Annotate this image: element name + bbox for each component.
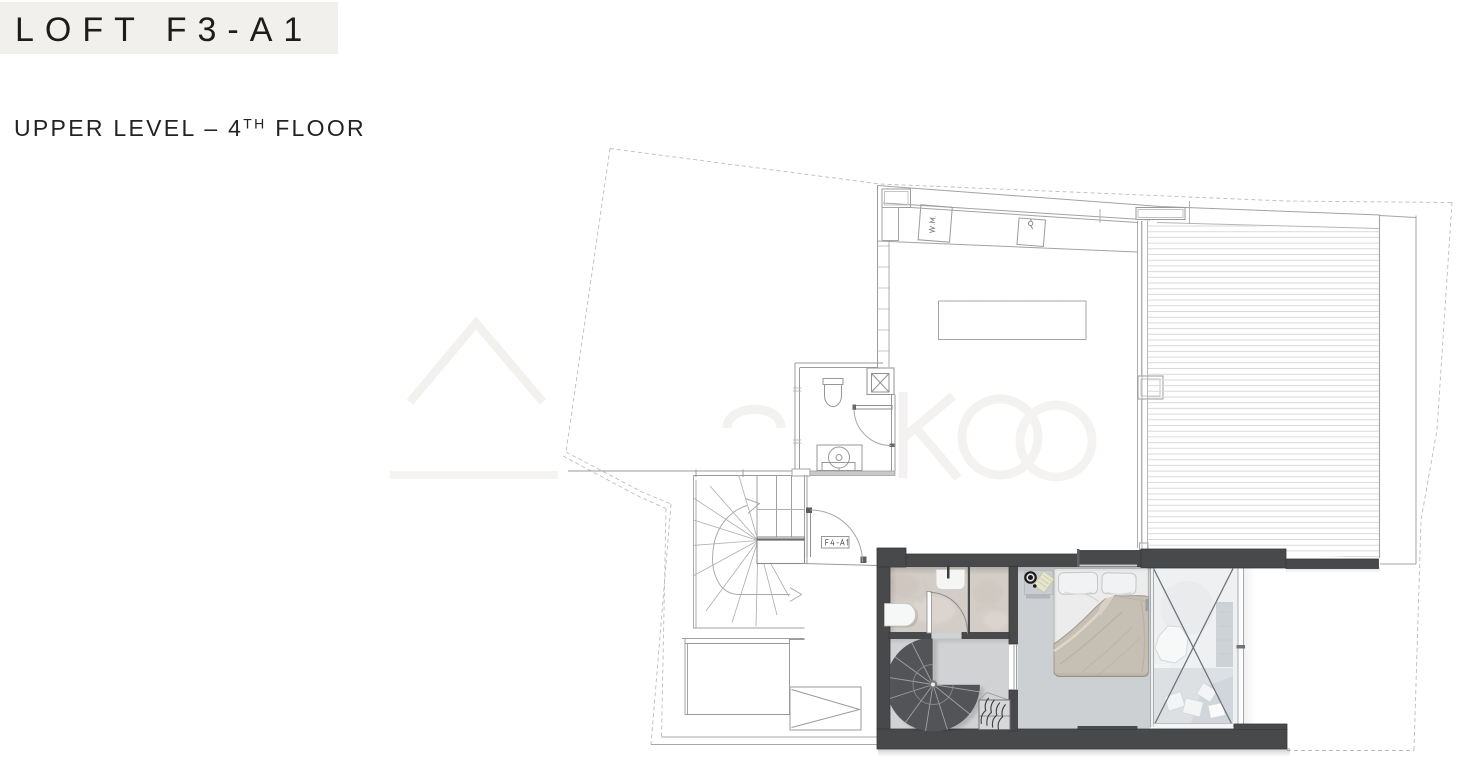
svg-text:UPPER LEVEL – 4TH FLOOR: UPPER LEVEL – 4TH FLOOR (14, 115, 366, 141)
svg-text:LOFT F3-A1: LOFT F3-A1 (15, 11, 313, 49)
